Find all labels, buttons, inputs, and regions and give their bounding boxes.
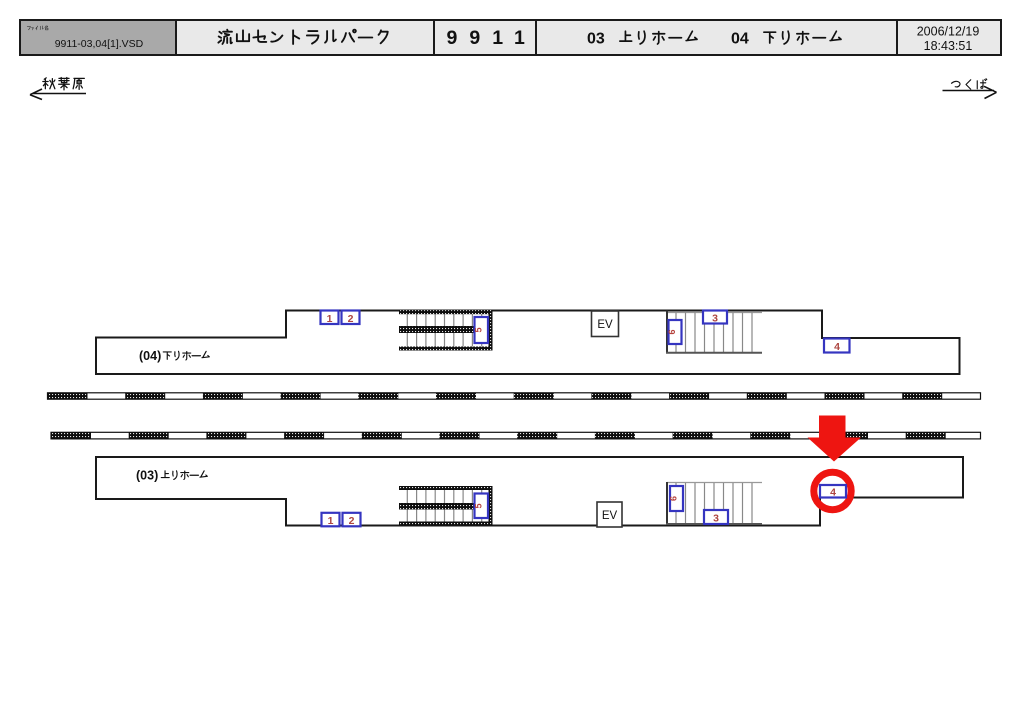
svg-text:6: 6	[667, 329, 677, 334]
svg-text:(04): (04)	[139, 349, 161, 363]
svg-text:2: 2	[348, 313, 354, 325]
svg-text:2: 2	[349, 515, 355, 527]
svg-text:5: 5	[474, 327, 484, 332]
svg-text:1: 1	[327, 313, 333, 325]
svg-text:2006/12/19: 2006/12/19	[917, 25, 980, 39]
svg-text:6: 6	[669, 496, 679, 501]
svg-text:04: 04	[731, 31, 749, 48]
svg-text:(03): (03)	[136, 469, 158, 483]
svg-text:9911: 9911	[447, 27, 537, 49]
svg-text:18:43:51: 18:43:51	[924, 39, 973, 53]
svg-text:4: 4	[834, 341, 840, 353]
svg-text:1: 1	[328, 515, 334, 527]
svg-text:4: 4	[830, 487, 836, 499]
svg-text:3: 3	[713, 513, 719, 525]
svg-text:3: 3	[712, 313, 718, 325]
svg-text:03: 03	[587, 31, 605, 48]
svg-text:9911-03,04[1].VSD: 9911-03,04[1].VSD	[55, 38, 144, 50]
svg-text:EV: EV	[602, 510, 618, 522]
svg-text:5: 5	[474, 503, 484, 508]
svg-text:EV: EV	[597, 319, 613, 331]
